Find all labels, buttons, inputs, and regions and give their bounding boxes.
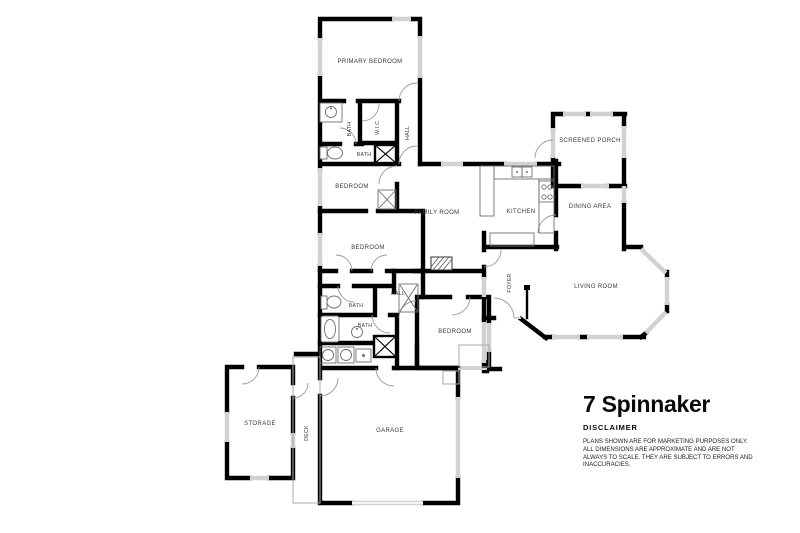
wall-screened-porch bbox=[553, 114, 625, 186]
kitchen-sink bbox=[512, 167, 532, 177]
room-label-deck: DECK bbox=[304, 425, 310, 441]
room-label-primary-bath: BATH bbox=[347, 122, 353, 136]
linen-closet-upper bbox=[375, 145, 396, 163]
room-label-storage: STORAGE bbox=[244, 421, 276, 427]
disclaimer-line-3: ALWAYS TO SCALE. THEY ARE SUBJECT TO ERR… bbox=[583, 454, 721, 462]
room-label-bedroom3: BEDROOM bbox=[438, 329, 471, 335]
fireplace bbox=[431, 257, 452, 270]
wall-dining-living bbox=[545, 203, 667, 337]
title-block: 7 Spinnaker DISCLAIMER PLANS SHOWN ARE F… bbox=[583, 391, 733, 469]
floor-plan-page: PRIMARY BEDROOM BATH W.I.C. HALL BATH BE… bbox=[0, 0, 800, 533]
room-label-dining-area: DINING AREA bbox=[569, 204, 612, 210]
room-label-primary-bedroom: PRIMARY BEDROOM bbox=[337, 59, 402, 65]
plan-title: 7 Spinnaker bbox=[583, 391, 733, 418]
room-label-kitchen: KITCHEN bbox=[507, 209, 536, 215]
room-label-bath-lower2: BATH bbox=[358, 323, 372, 329]
shower-lower-bath bbox=[374, 336, 396, 357]
sink-primary-bath bbox=[320, 103, 342, 122]
room-label-bath-lower1: BATH bbox=[349, 303, 363, 309]
bathtub bbox=[321, 316, 339, 342]
room-label-screened-porch: SCREENED PORCH bbox=[559, 138, 621, 144]
room-label-wic: W.I.C. bbox=[375, 119, 381, 135]
disclaimer-line-4: INACCURACIES. bbox=[583, 461, 721, 469]
room-label-garage: GARAGE bbox=[376, 428, 404, 434]
room-label-family-room: FAMILY ROOM bbox=[415, 210, 460, 216]
toilet-lower-bath bbox=[321, 296, 341, 309]
disclaimer-text: PLANS SHOWN ARE FOR MARKETING PURPOSES O… bbox=[583, 438, 721, 469]
room-labels: PRIMARY BEDROOM BATH W.I.C. HALL BATH BE… bbox=[244, 59, 621, 441]
washer-dryer bbox=[320, 347, 371, 363]
room-label-bath-upper: BATH bbox=[357, 152, 371, 158]
room-label-bedroom2: BEDROOM bbox=[351, 245, 384, 251]
toilet-upper-bath bbox=[320, 147, 343, 159]
room-label-foyer: FOYER bbox=[507, 273, 513, 292]
wall-foyer bbox=[484, 318, 546, 371]
room-label-hall-upper: HALL bbox=[405, 126, 411, 140]
closet-bedroom1 bbox=[378, 190, 396, 209]
disclaimer-line-1: PLANS SHOWN ARE FOR MARKETING PURPOSES O… bbox=[583, 438, 721, 446]
foyer-column-cap bbox=[524, 285, 530, 290]
disclaimer-heading: DISCLAIMER bbox=[583, 423, 733, 432]
room-label-hall-lower: HALL bbox=[391, 291, 405, 297]
disclaimer-line-2: ALL DIMENSIONS ARE APPROXIMATE AND ARE N… bbox=[583, 446, 721, 454]
room-label-living-room: LIVING ROOM bbox=[574, 284, 618, 290]
wall-bedrooms bbox=[320, 184, 423, 297]
kitchen-counters bbox=[480, 166, 554, 246]
room-label-bedroom1: BEDROOM bbox=[335, 184, 368, 190]
bay-window-angled bbox=[641, 249, 666, 333]
